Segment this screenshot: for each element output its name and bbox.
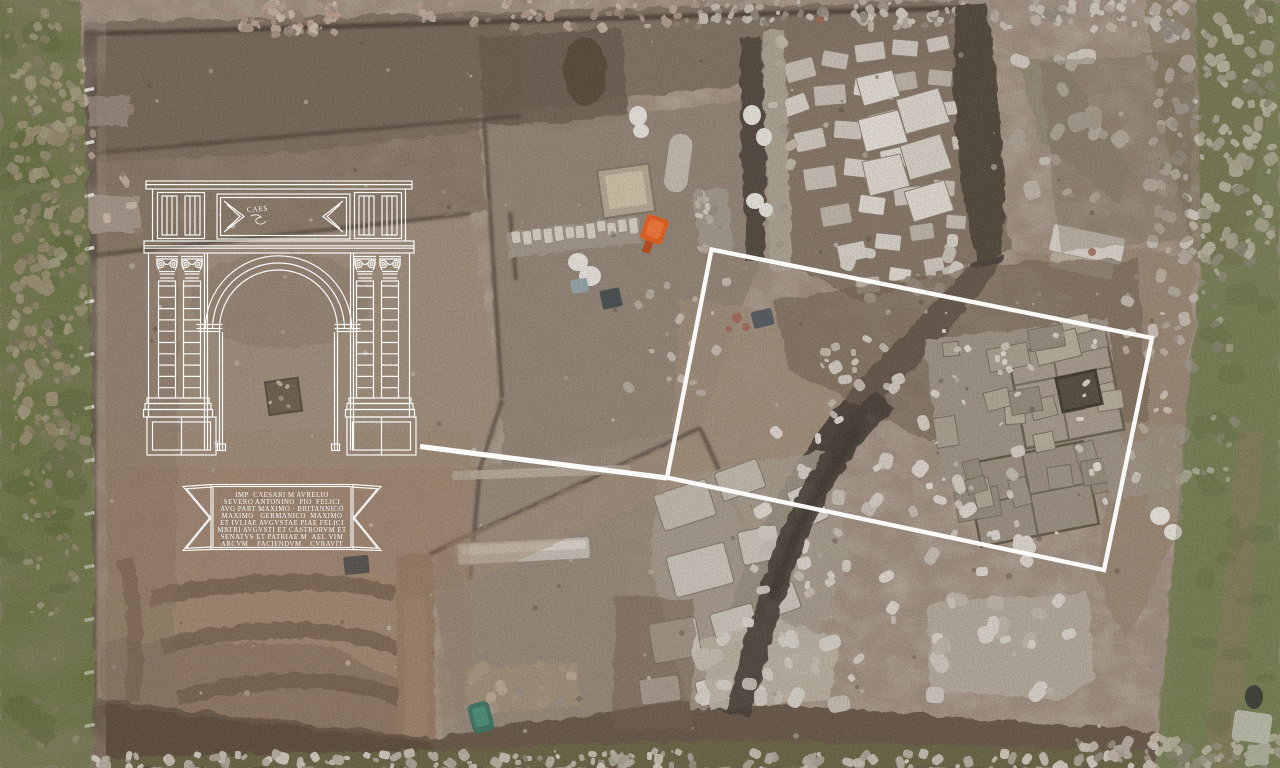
svg-text:SENATVS ET PATRIAE M AEL VIM: SENATVS ET PATRIAE M AEL VIM: [221, 534, 344, 541]
svg-text:MATRI AVGVSTI ET CASTRORVM ET: MATRI AVGVSTI ET CASTRORVM ET: [217, 527, 347, 534]
svg-text:SEVERO ANTONINO PIO FELICI: SEVERO ANTONINO PIO FELICI: [224, 499, 341, 506]
svg-text:IMP CAESARI M AVRELIO: IMP CAESARI M AVRELIO: [235, 492, 329, 499]
svg-text:ARCVM FACIENDVM CVRAVIT: ARCVM FACIENDVM CVRAVIT: [221, 541, 344, 548]
svg-text:CAES: CAES: [247, 204, 269, 214]
svg-text:MAXIMO GERMANICO MAXIMO: MAXIMO GERMANICO MAXIMO: [222, 513, 343, 520]
svg-text:ET IVLIAE AVGVSTAE PIAE FELICI: ET IVLIAE AVGVSTAE PIAE FELICI: [220, 520, 344, 527]
svg-text:AVG PART MAXIMO · BRITANNICO: AVG PART MAXIMO · BRITANNICO: [220, 506, 344, 513]
